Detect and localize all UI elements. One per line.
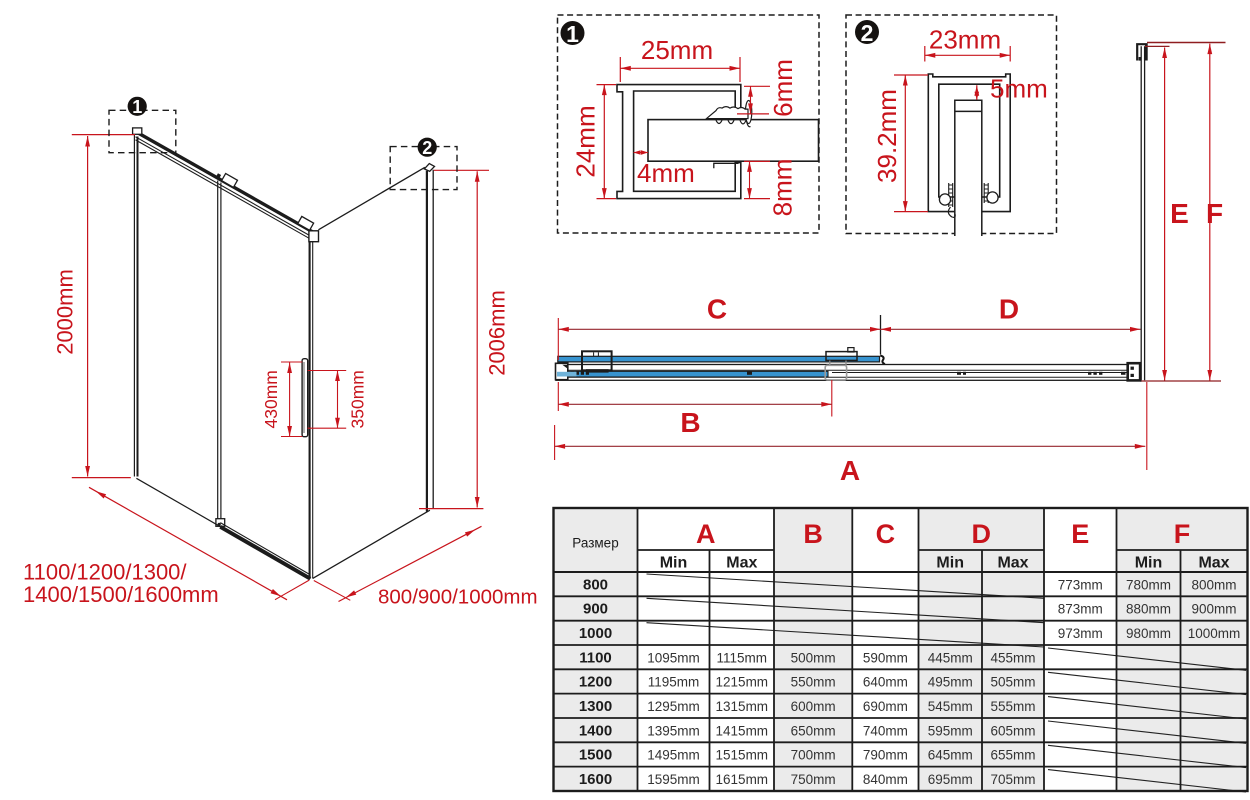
svg-text:F: F xyxy=(1174,519,1191,549)
svg-text:C: C xyxy=(707,294,727,325)
svg-text:2006mm: 2006mm xyxy=(485,290,510,376)
svg-text:430mm: 430mm xyxy=(261,370,281,428)
svg-text:Max: Max xyxy=(1198,555,1229,572)
svg-text:800mm: 800mm xyxy=(1191,577,1236,592)
svg-text:B: B xyxy=(680,407,700,438)
svg-text:773mm: 773mm xyxy=(1058,577,1103,592)
svg-text:23mm: 23mm xyxy=(929,25,1001,55)
svg-text:1000: 1000 xyxy=(579,625,612,642)
svg-text:1400: 1400 xyxy=(579,722,612,739)
svg-text:1415mm: 1415mm xyxy=(716,723,769,738)
svg-text:780mm: 780mm xyxy=(1126,577,1171,592)
svg-text:900mm: 900mm xyxy=(1191,602,1236,617)
svg-text:1100: 1100 xyxy=(579,649,612,666)
svg-text:1500: 1500 xyxy=(579,747,612,764)
svg-text:1100/1200/1300/: 1100/1200/1300/ xyxy=(23,560,187,585)
svg-text:1: 1 xyxy=(566,21,579,47)
svg-text:8mm: 8mm xyxy=(768,159,798,217)
svg-text:Max: Max xyxy=(726,555,757,572)
svg-text:39.2mm: 39.2mm xyxy=(872,89,902,183)
svg-text:1400/1500/1600mm: 1400/1500/1600mm xyxy=(23,582,219,607)
svg-text:900: 900 xyxy=(583,601,608,618)
svg-text:2: 2 xyxy=(861,20,874,46)
svg-text:700mm: 700mm xyxy=(791,748,836,763)
svg-text:545mm: 545mm xyxy=(928,699,973,714)
svg-text:1615mm: 1615mm xyxy=(716,772,769,787)
svg-text:1115mm: 1115mm xyxy=(717,650,768,665)
svg-text:840mm: 840mm xyxy=(863,772,908,787)
svg-text:4mm: 4mm xyxy=(637,158,695,188)
svg-text:655mm: 655mm xyxy=(990,748,1035,763)
svg-text:980mm: 980mm xyxy=(1126,626,1171,641)
svg-text:Max: Max xyxy=(997,555,1028,572)
svg-text:645mm: 645mm xyxy=(928,748,973,763)
svg-text:800/900/1000mm: 800/900/1000mm xyxy=(378,586,538,609)
svg-text:6mm: 6mm xyxy=(768,59,798,117)
svg-text:E: E xyxy=(1071,519,1089,549)
svg-text:1200: 1200 xyxy=(579,674,612,691)
svg-text:973mm: 973mm xyxy=(1058,626,1103,641)
svg-text:605mm: 605mm xyxy=(990,723,1035,738)
svg-text:500mm: 500mm xyxy=(791,650,836,665)
svg-text:695mm: 695mm xyxy=(928,772,973,787)
svg-text:25mm: 25mm xyxy=(641,35,713,65)
svg-text:1215mm: 1215mm xyxy=(716,675,769,690)
svg-text:740mm: 740mm xyxy=(863,723,908,738)
svg-text:880mm: 880mm xyxy=(1126,602,1171,617)
svg-text:690mm: 690mm xyxy=(863,699,908,714)
svg-text:1600: 1600 xyxy=(579,771,612,788)
svg-text:1295mm: 1295mm xyxy=(647,699,700,714)
svg-text:B: B xyxy=(803,519,823,549)
svg-text:1595mm: 1595mm xyxy=(647,772,700,787)
svg-text:2000mm: 2000mm xyxy=(53,269,78,355)
svg-text:1315mm: 1315mm xyxy=(716,699,769,714)
svg-text:Min: Min xyxy=(1135,555,1163,572)
svg-text:1300: 1300 xyxy=(579,698,612,715)
svg-text:F: F xyxy=(1206,198,1223,229)
svg-text:873mm: 873mm xyxy=(1058,602,1103,617)
svg-text:555mm: 555mm xyxy=(990,699,1035,714)
svg-text:E: E xyxy=(1170,198,1189,229)
svg-text:350mm: 350mm xyxy=(348,370,368,428)
svg-text:D: D xyxy=(999,294,1019,325)
svg-text:505mm: 505mm xyxy=(990,675,1035,690)
svg-text:5mm: 5mm xyxy=(990,74,1048,104)
svg-text:24mm: 24mm xyxy=(571,105,601,177)
svg-text:A: A xyxy=(696,519,716,549)
svg-text:640mm: 640mm xyxy=(863,675,908,690)
svg-text:705mm: 705mm xyxy=(990,772,1035,787)
svg-text:1495mm: 1495mm xyxy=(647,748,700,763)
svg-text:790mm: 790mm xyxy=(863,748,908,763)
svg-text:595mm: 595mm xyxy=(928,723,973,738)
svg-text:2: 2 xyxy=(422,138,432,158)
svg-text:1515mm: 1515mm xyxy=(716,748,769,763)
svg-text:750mm: 750mm xyxy=(791,772,836,787)
svg-text:1095mm: 1095mm xyxy=(647,650,700,665)
svg-text:D: D xyxy=(971,519,991,549)
svg-text:590mm: 590mm xyxy=(863,650,908,665)
svg-text:445mm: 445mm xyxy=(928,650,973,665)
svg-text:Min: Min xyxy=(936,555,964,572)
svg-text:650mm: 650mm xyxy=(791,723,836,738)
svg-text:455mm: 455mm xyxy=(990,650,1035,665)
svg-text:C: C xyxy=(876,519,896,549)
svg-text:1: 1 xyxy=(132,97,142,117)
svg-text:Размер: Размер xyxy=(572,536,618,551)
svg-text:1195mm: 1195mm xyxy=(648,675,700,690)
svg-text:800: 800 xyxy=(583,576,608,593)
svg-text:A: A xyxy=(840,455,860,486)
svg-text:1000mm: 1000mm xyxy=(1188,626,1241,641)
svg-text:495mm: 495mm xyxy=(928,675,973,690)
svg-text:Min: Min xyxy=(660,555,688,572)
svg-text:550mm: 550mm xyxy=(791,675,836,690)
svg-text:1395mm: 1395mm xyxy=(647,723,700,738)
svg-text:600mm: 600mm xyxy=(791,699,836,714)
